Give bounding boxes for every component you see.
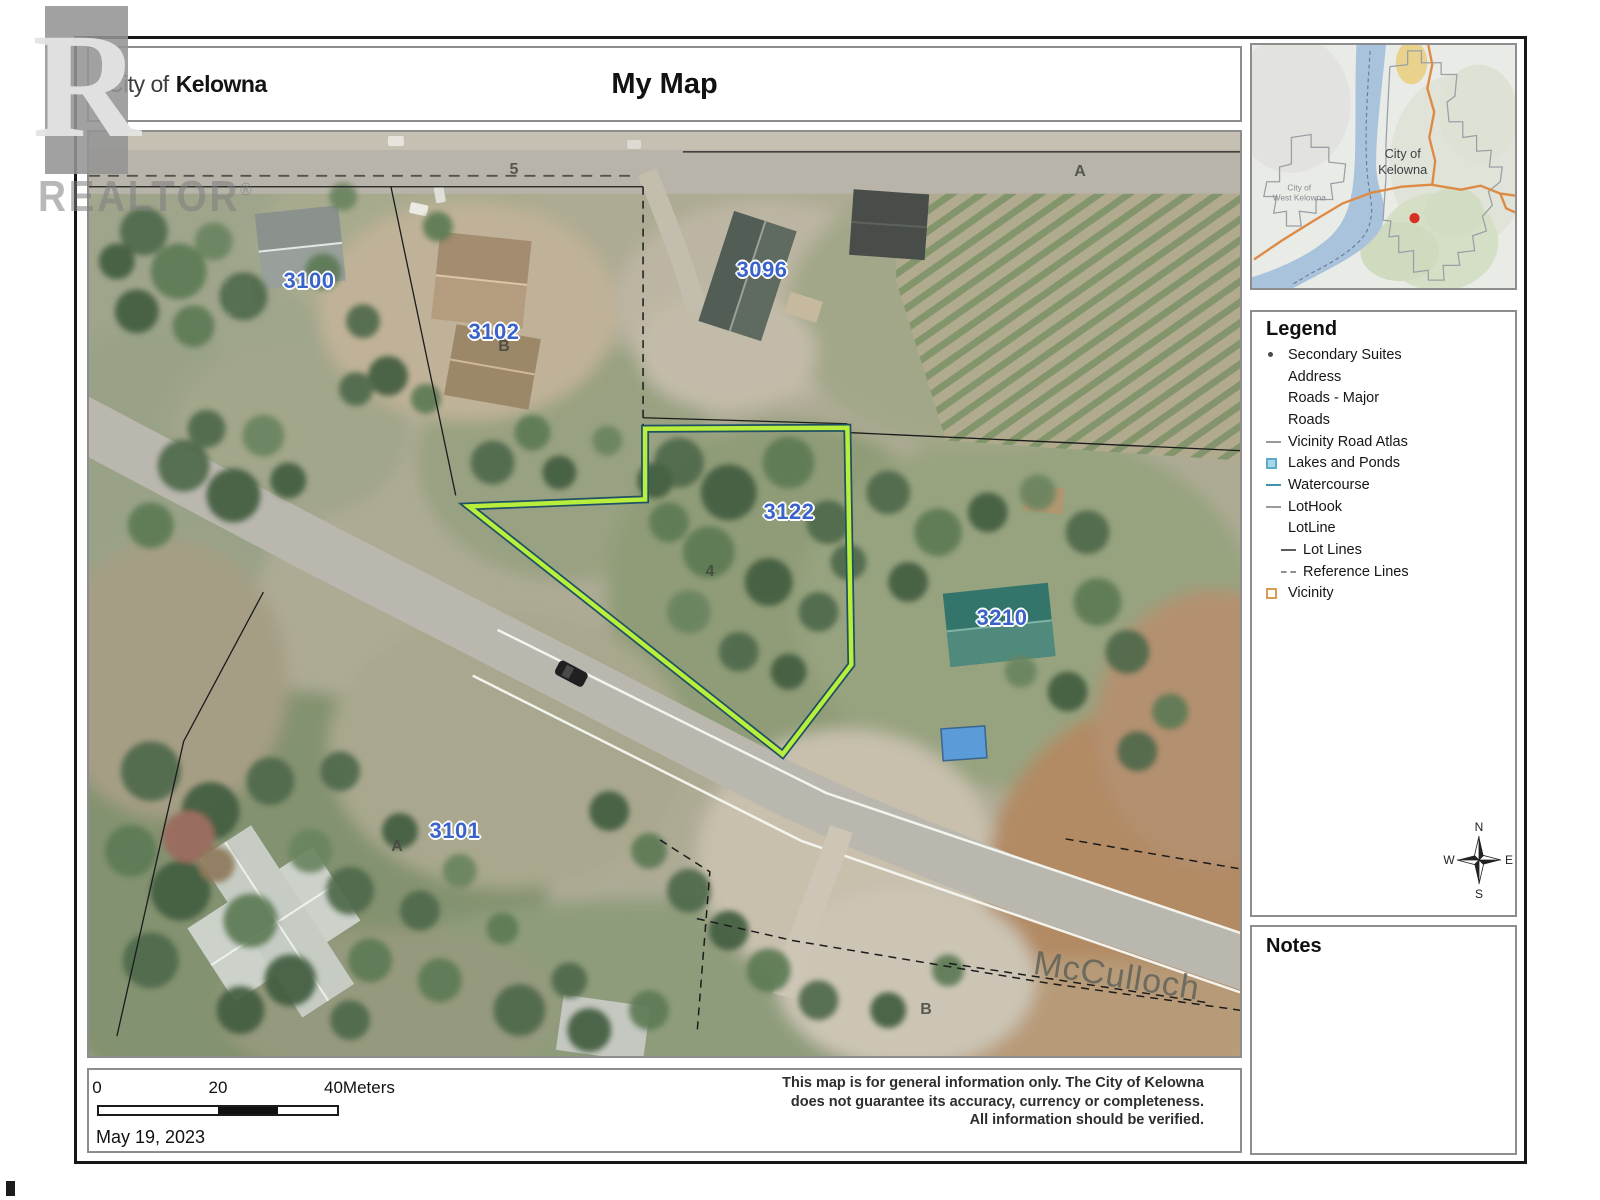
plan-label-5: 5 <box>510 161 519 179</box>
orchard-rows <box>896 152 1240 461</box>
dot-icon <box>1266 352 1288 357</box>
inset-west-city-label-line2: West Kelowna <box>1273 192 1327 202</box>
dark-line-icon <box>1281 549 1303 551</box>
address-label-3210: 3210 <box>977 605 1028 631</box>
realtor-r-glyph: R <box>32 11 140 161</box>
scan-artifact <box>6 1181 15 1196</box>
legend-item-roads: Roads <box>1266 409 1509 431</box>
inset-map-graphic: City of Kelowna City of West Kelowna <box>1252 45 1515 288</box>
gray-line-icon <box>1266 506 1288 508</box>
compass-s: S <box>1475 887 1483 901</box>
page-title: My Map <box>89 48 1240 120</box>
scale-label-0: 0 <box>92 1078 101 1098</box>
notes-panel: Notes <box>1250 925 1517 1155</box>
map-date: May 19, 2023 <box>96 1127 205 1148</box>
compass-e: E <box>1505 853 1513 867</box>
orange-square-icon <box>1266 588 1288 599</box>
address-label-3102: 3102 <box>469 319 520 345</box>
address-label-3122: 3122 <box>764 499 815 525</box>
legend-item-vicinity: Vicinity <box>1266 583 1509 605</box>
plan-label-b-bottom: B <box>920 1001 932 1019</box>
legend-item-watercourse: Watercourse <box>1266 474 1509 496</box>
address-label-3101: 3101 <box>430 818 481 844</box>
inset-city-label-line1: City of <box>1385 146 1422 161</box>
registered-mark: ® <box>240 179 254 199</box>
scale-bar <box>97 1105 339 1116</box>
scale-label-40meters: 40Meters <box>324 1078 395 1098</box>
compass-w: W <box>1443 853 1455 867</box>
legend-title: Legend <box>1266 318 1337 341</box>
compass-n: N <box>1475 820 1484 834</box>
disclaimer-line-1: This map is for general information only… <box>782 1074 1204 1093</box>
inset-city-label-line2: Kelowna <box>1378 162 1428 177</box>
legend-items: Secondary Suites Address Roads - Major R… <box>1266 344 1509 604</box>
teal-line-icon <box>1266 484 1288 486</box>
legend-item-address: Address <box>1266 366 1509 388</box>
blue-square-icon <box>1266 458 1288 469</box>
disclaimer-line-2: does not guarantee its accuracy, currenc… <box>782 1093 1204 1112</box>
legend-item-lothook: LotHook <box>1266 496 1509 518</box>
legend-item-vicinity-road-atlas: Vicinity Road Atlas <box>1266 431 1509 453</box>
address-label-3100: 3100 <box>284 268 335 294</box>
legend-item-roads-major: Roads - Major <box>1266 387 1509 409</box>
inset-location-marker <box>1409 213 1419 223</box>
legend-item-lot-lines: Lot Lines <box>1266 539 1509 561</box>
legend-item-reference-lines: Reference Lines <box>1266 561 1509 583</box>
legend-item-secondary-suites: Secondary Suites <box>1266 344 1509 366</box>
plan-label-a-top: A <box>1074 163 1086 181</box>
footer-bar: 0 20 40Meters May 19, 2023 This map is f… <box>87 1068 1242 1153</box>
main-map: 3100 3102 3096 3122 3210 3101 5 A B 4 A … <box>87 130 1242 1058</box>
header-bar: City of Kelowna My Map <box>87 46 1242 122</box>
legend-panel: Legend Secondary Suites Address Roads - … <box>1250 310 1517 917</box>
realtor-logo-watermark: R <box>45 6 128 174</box>
scale-label-20: 20 <box>209 1078 228 1098</box>
disclaimer-line-3: All information should be verified. <box>782 1111 1204 1130</box>
dashed-line-icon <box>1281 571 1303 573</box>
plan-label-b-mid: B <box>498 338 510 356</box>
scale-bar-segment <box>218 1107 278 1114</box>
legend-item-lotline: LotLine <box>1266 518 1509 540</box>
plan-label-a-bottom: A <box>391 838 403 856</box>
vicinity-inset-map: City of Kelowna City of West Kelowna <box>1250 43 1517 290</box>
realtor-word-watermark: REALTOR® <box>38 172 254 222</box>
disclaimer-text: This map is for general information only… <box>782 1074 1204 1130</box>
address-label-3096: 3096 <box>737 257 788 283</box>
aerial-photo <box>89 132 1240 1056</box>
gray-line-icon <box>1266 441 1288 443</box>
notes-title: Notes <box>1266 935 1322 958</box>
map-print-page: City of Kelowna My Map <box>0 0 1600 1200</box>
compass-rose-icon: N E S W <box>1442 817 1516 903</box>
legend-item-lakes-and-ponds: Lakes and Ponds <box>1266 452 1509 474</box>
plan-label-4: 4 <box>706 563 715 581</box>
inset-west-city-label-line1: City of <box>1287 183 1311 193</box>
